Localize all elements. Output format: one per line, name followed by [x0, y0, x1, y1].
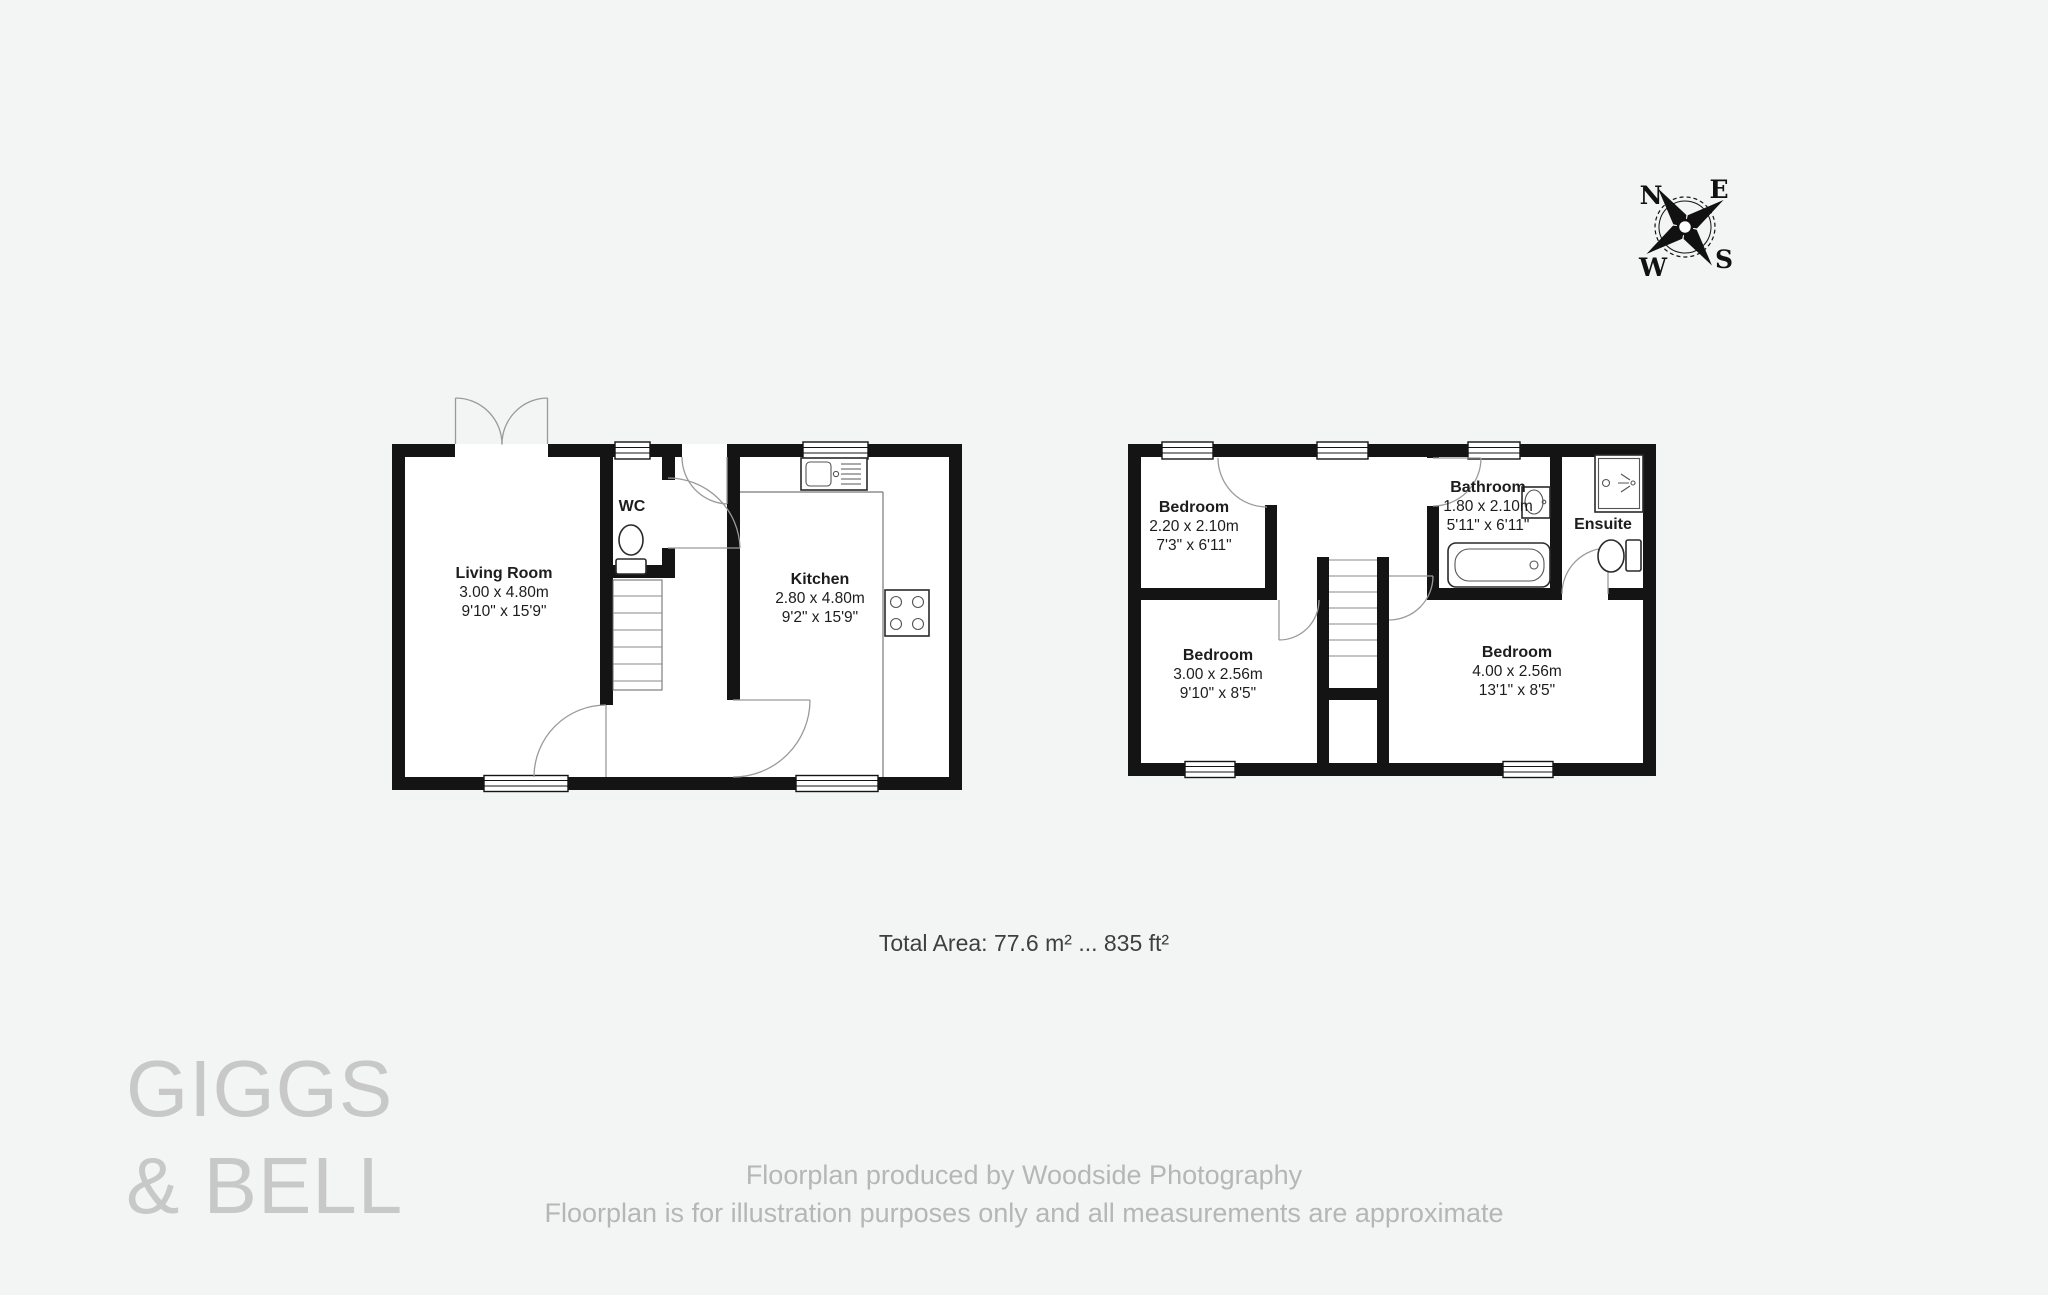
bedroom-left-label: Bedroom: [1183, 647, 1253, 664]
ground-floor-plan: Living Room 3.00 x 4.80m 9'10" x 15'9" W…: [385, 388, 970, 800]
bedroom-right-imperial: 13'1" x 8'5": [1479, 682, 1555, 699]
compass: N E S W: [1625, 163, 1755, 298]
bedroom-left-metric: 3.00 x 2.56m: [1173, 666, 1263, 683]
kitchen-label: Kitchen: [791, 571, 850, 588]
window-icon: [796, 776, 878, 792]
living-room-label: Living Room: [456, 565, 553, 582]
bedroom-front-metric: 2.20 x 2.10m: [1149, 518, 1239, 535]
bedroom-right-label: Bedroom: [1482, 644, 1552, 661]
stairs-down-icon: [613, 580, 662, 690]
watermark-line-1: GIGGS: [126, 1040, 403, 1137]
living-room-imperial: 9'10" x 15'9": [461, 603, 546, 620]
bedroom-left-imperial: 9'10" x 8'5": [1180, 685, 1256, 702]
window-icon: [1317, 442, 1368, 459]
watermark-line-2: & BELL: [126, 1137, 403, 1234]
compass-letter-w: W: [1638, 253, 1668, 282]
window-icon: [1503, 762, 1553, 778]
bathroom-label: Bathroom: [1450, 479, 1526, 496]
bedroom-right-metric: 4.00 x 2.56m: [1472, 663, 1562, 680]
bathroom-imperial: 5'11" x 6'11": [1447, 517, 1530, 534]
kitchen-imperial: 9'2" x 15'9": [782, 609, 858, 626]
toilet-icon: [1598, 540, 1641, 572]
bedroom-front-label: Bedroom: [1159, 499, 1229, 516]
kitchen-sink-icon: [801, 458, 867, 490]
compass-letter-n: N: [1640, 181, 1663, 210]
living-room-metric: 3.00 x 4.80m: [459, 584, 549, 601]
window-icon: [615, 442, 650, 459]
compass-letter-s: S: [1715, 245, 1733, 274]
kitchen-metric: 2.80 x 4.80m: [775, 590, 865, 607]
compass-letter-e: E: [1709, 175, 1728, 204]
window-icon: [1468, 442, 1520, 459]
watermark-logo: GIGGS & BELL: [126, 1040, 403, 1234]
wc-label: WC: [619, 498, 646, 515]
first-floor-interior: [1128, 444, 1656, 776]
french-doors-icon: [456, 398, 548, 445]
first-floor-plan: Bedroom 2.20 x 2.10m 7'3" x 6'11" Bathro…: [1120, 435, 1670, 785]
hob-icon: [885, 590, 929, 636]
total-area-text: Total Area: 77.6 m² ... 835 ft²: [0, 930, 2048, 957]
floorplan-page: Living Room 3.00 x 4.80m 9'10" x 15'9" W…: [0, 0, 2048, 1295]
window-icon: [803, 442, 868, 459]
bathtub-icon: [1448, 543, 1550, 587]
bathroom-metric: 1.80 x 2.10m: [1443, 498, 1533, 515]
window-icon: [1185, 762, 1235, 778]
ensuite-label: Ensuite: [1574, 516, 1632, 533]
window-icon: [484, 776, 568, 792]
bedroom-front-imperial: 7'3" x 6'11": [1156, 537, 1231, 554]
window-icon: [1162, 442, 1213, 459]
shower-icon: [1595, 455, 1643, 512]
